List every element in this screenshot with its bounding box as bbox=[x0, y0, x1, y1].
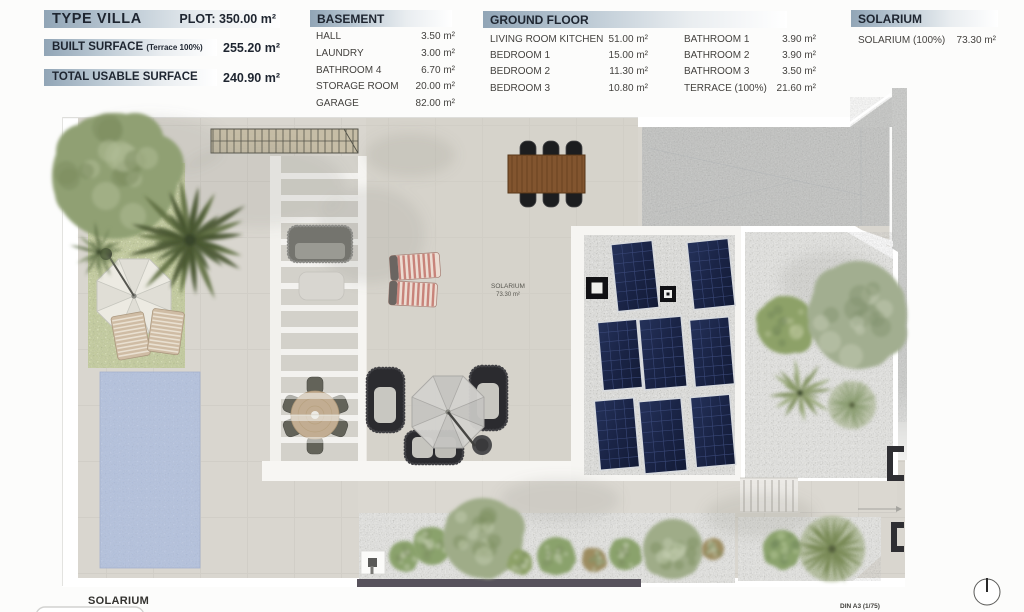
svg-text:73.30 m²: 73.30 m² bbox=[496, 292, 520, 298]
svg-text:DIN A3 (1/75): DIN A3 (1/75) bbox=[840, 603, 880, 610]
svg-text:SOLARIUM: SOLARIUM bbox=[491, 283, 525, 290]
svg-text:SOLARIUM: SOLARIUM bbox=[88, 595, 149, 607]
